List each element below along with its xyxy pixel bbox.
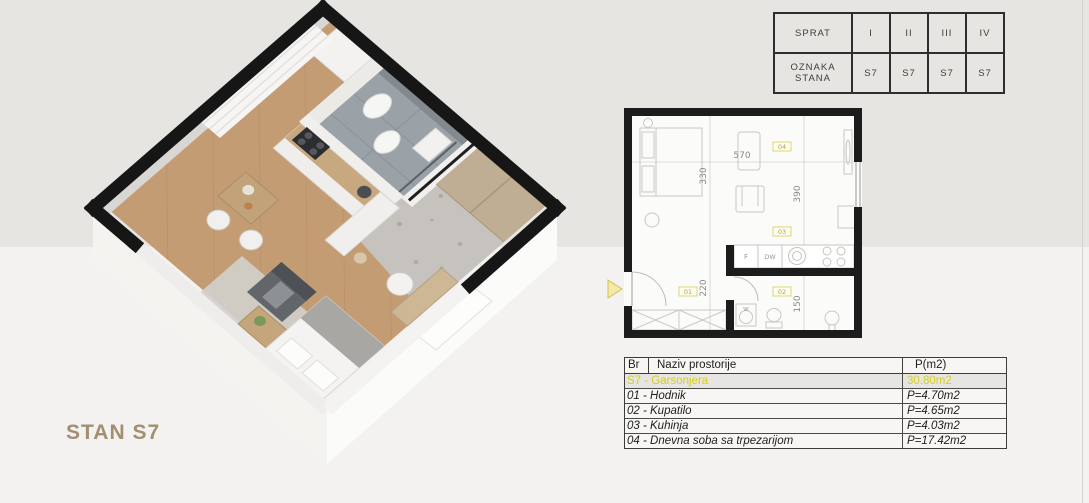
apartment-2d-plan: F DW W [596, 98, 868, 346]
room-area: P=4.70m2 [902, 389, 1006, 403]
wall-top [624, 108, 862, 116]
room-name: 01 - Hodnik [625, 389, 902, 403]
room-label-livingroom: 04 [778, 143, 786, 151]
table-row: 03 - Kuhinja P=4.03m2 [625, 419, 1006, 434]
room-label-kitchen: 03 [778, 228, 786, 236]
room-name: 03 - Kuhinja [625, 419, 902, 433]
wall-right-lower [854, 207, 862, 338]
page-title: STAN S7 [66, 421, 160, 445]
wall-left-upper [624, 108, 632, 272]
room-area: P=17.42m2 [902, 434, 1006, 448]
area-table-header: Br Naziv prostorije P(m2) [625, 358, 1006, 374]
table-row: 02 - Kupatilo P=4.65m2 [625, 404, 1006, 419]
table-row-summary: S7 - Garsonjera 30.80m2 [625, 374, 1006, 389]
summary-area: 30.80m2 [902, 374, 1006, 388]
apartment-3d-render [5, 0, 580, 480]
room-name: 04 - Dnevna soba sa trpezarijom [625, 434, 902, 448]
col-header-area: P(m2) [902, 358, 1006, 373]
legend-floor-cell: IV [966, 13, 1004, 53]
room-area: P=4.03m2 [902, 419, 1006, 433]
legend-unit-cell: S7 [966, 53, 1004, 93]
legend-sprat-label: SPRAT [774, 13, 852, 53]
legend-unit-cell: S7 [928, 53, 966, 93]
legend-floor-cell: III [928, 13, 966, 53]
floors-legend-table: SPRAT I II III IV OZNAKA STANA S7 S7 S7 … [773, 12, 1005, 94]
dim-right-upper: 390 [793, 185, 803, 202]
legend-row-sprat: SPRAT I II III IV [774, 13, 1004, 53]
dim-left-upper: 330 [699, 167, 709, 184]
table-row: 04 - Dnevna soba sa trpezarijom P=17.42m… [625, 434, 1006, 448]
wall-bottom [624, 330, 862, 338]
fridge-label: F [744, 253, 748, 261]
legend-unit-cell: S7 [890, 53, 928, 93]
wall-hall-bath [726, 300, 734, 330]
summary-name: S7 - Garsonjera [625, 374, 902, 388]
plan-kitchen-group: F DW [734, 245, 854, 268]
legend-oznaka-label: OZNAKA STANA [774, 53, 852, 93]
page: STAN S7 F [0, 0, 1089, 503]
room-label-hall: 01 [684, 288, 692, 296]
wall-left-lower [624, 306, 632, 338]
room-label-bath: 02 [778, 288, 786, 296]
wall-kitchen-left [726, 245, 734, 276]
legend-floor-cell: II [890, 13, 928, 53]
dim-right-lower: 150 [793, 295, 803, 312]
col-header-br: Br [625, 358, 649, 373]
room-name: 02 - Kupatilo [625, 404, 902, 418]
rooms-area-table: Br Naziv prostorije P(m2) S7 - Garsonjer… [624, 357, 1007, 449]
room-area: P=4.65m2 [902, 404, 1006, 418]
legend-unit-cell: S7 [852, 53, 890, 93]
dim-left-lower: 220 [699, 279, 709, 296]
entrance-arrow-icon [608, 280, 622, 298]
table-row: 01 - Hodnik P=4.70m2 [625, 389, 1006, 404]
dim-top: 570 [733, 151, 750, 161]
legend-floor-cell: I [852, 13, 890, 53]
floor-plane [93, 8, 550, 402]
wall-under-kitchen [734, 268, 854, 276]
col-header-naziv: Naziv prostorije [649, 358, 902, 373]
legend-row-oznaka: OZNAKA STANA S7 S7 S7 S7 [774, 53, 1004, 93]
plan-window [854, 162, 862, 207]
wall-right-upper [854, 108, 862, 162]
page-edge-line [1082, 0, 1083, 503]
washer-label: W [743, 307, 749, 313]
dishwasher-label: DW [764, 253, 776, 261]
